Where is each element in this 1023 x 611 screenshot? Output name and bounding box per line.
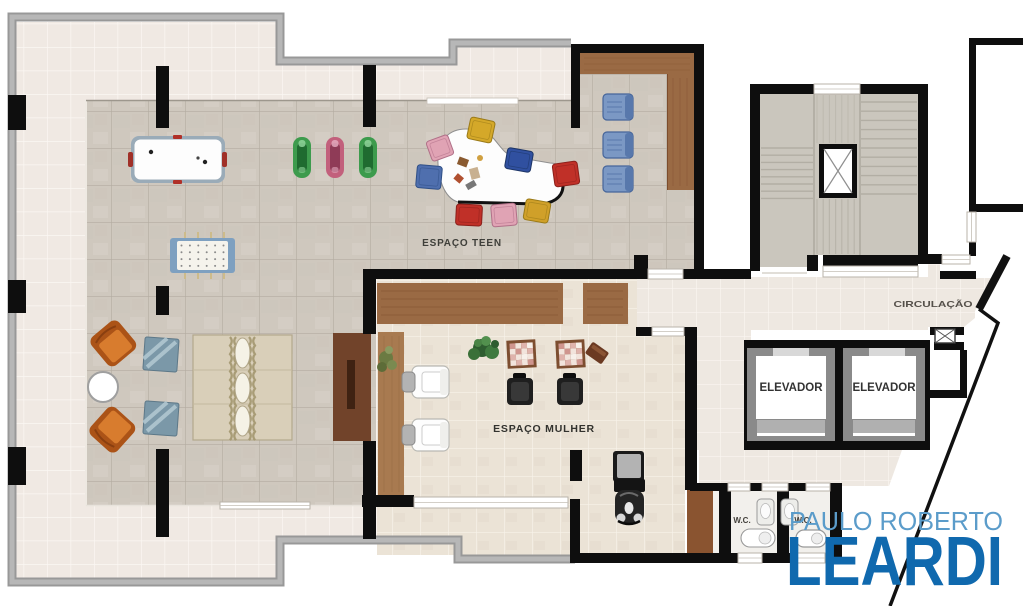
svg-text:ELEVADOR: ELEVADOR bbox=[760, 382, 824, 394]
svg-text:ELEVADOR: ELEVADOR bbox=[853, 382, 917, 394]
svg-text:LEARDI: LEARDI bbox=[786, 522, 1003, 600]
svg-text:W.C.: W.C. bbox=[733, 516, 750, 525]
svg-text:ESPAÇO TEEN: ESPAÇO TEEN bbox=[422, 238, 502, 249]
svg-text:CIRCULAÇÃO: CIRCULAÇÃO bbox=[894, 299, 974, 309]
svg-text:ESPAÇO MULHER: ESPAÇO MULHER bbox=[493, 423, 595, 435]
